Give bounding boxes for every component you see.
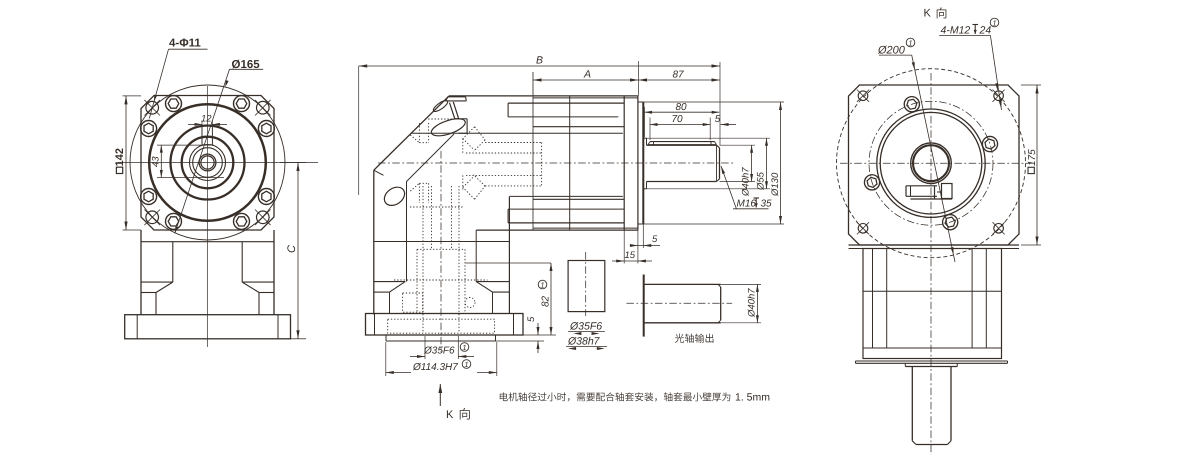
svg-text:M16: M16	[737, 199, 757, 210]
svg-text:175: 175	[1027, 149, 1038, 166]
svg-text:1. 5mm: 1. 5mm	[735, 392, 770, 404]
svg-text:24: 24	[979, 25, 992, 37]
svg-text:Ø40h7: Ø40h7	[746, 288, 757, 318]
svg-text:Ø40h7: Ø40h7	[741, 167, 752, 197]
svg-text:Ø130: Ø130	[770, 172, 781, 197]
svg-text:5: 5	[652, 234, 658, 245]
svg-text:1: 1	[462, 343, 466, 352]
svg-text:A: A	[583, 69, 591, 81]
svg-text:82: 82	[541, 295, 552, 307]
svg-text:Ø35F6: Ø35F6	[423, 346, 455, 357]
svg-text:4-Φ11: 4-Φ11	[169, 37, 201, 49]
svg-text:87: 87	[673, 70, 685, 81]
svg-text:Ø55: Ø55	[756, 171, 767, 191]
svg-text:Ø35F6: Ø35F6	[569, 321, 602, 333]
svg-text:1: 1	[908, 38, 912, 47]
svg-text:Ø38h7: Ø38h7	[567, 336, 601, 348]
svg-text:35: 35	[761, 199, 773, 210]
svg-text:1: 1	[992, 18, 996, 27]
svg-text:5: 5	[715, 114, 721, 125]
svg-text:K: K	[446, 409, 454, 421]
svg-text:B: B	[536, 55, 543, 67]
svg-text:1: 1	[540, 280, 544, 289]
svg-text:80: 80	[675, 102, 687, 113]
svg-text:15: 15	[625, 250, 636, 261]
svg-text:Ø114.3H7: Ø114.3H7	[412, 362, 458, 373]
svg-text:142: 142	[114, 148, 126, 166]
svg-text:12: 12	[201, 113, 212, 124]
svg-text:5: 5	[526, 316, 537, 322]
svg-text:70: 70	[671, 114, 683, 125]
svg-text:1: 1	[464, 360, 468, 369]
svg-text:43: 43	[151, 156, 162, 167]
svg-text:C: C	[286, 245, 298, 253]
svg-text:K: K	[924, 8, 932, 20]
svg-text:4-M12: 4-M12	[941, 25, 971, 37]
